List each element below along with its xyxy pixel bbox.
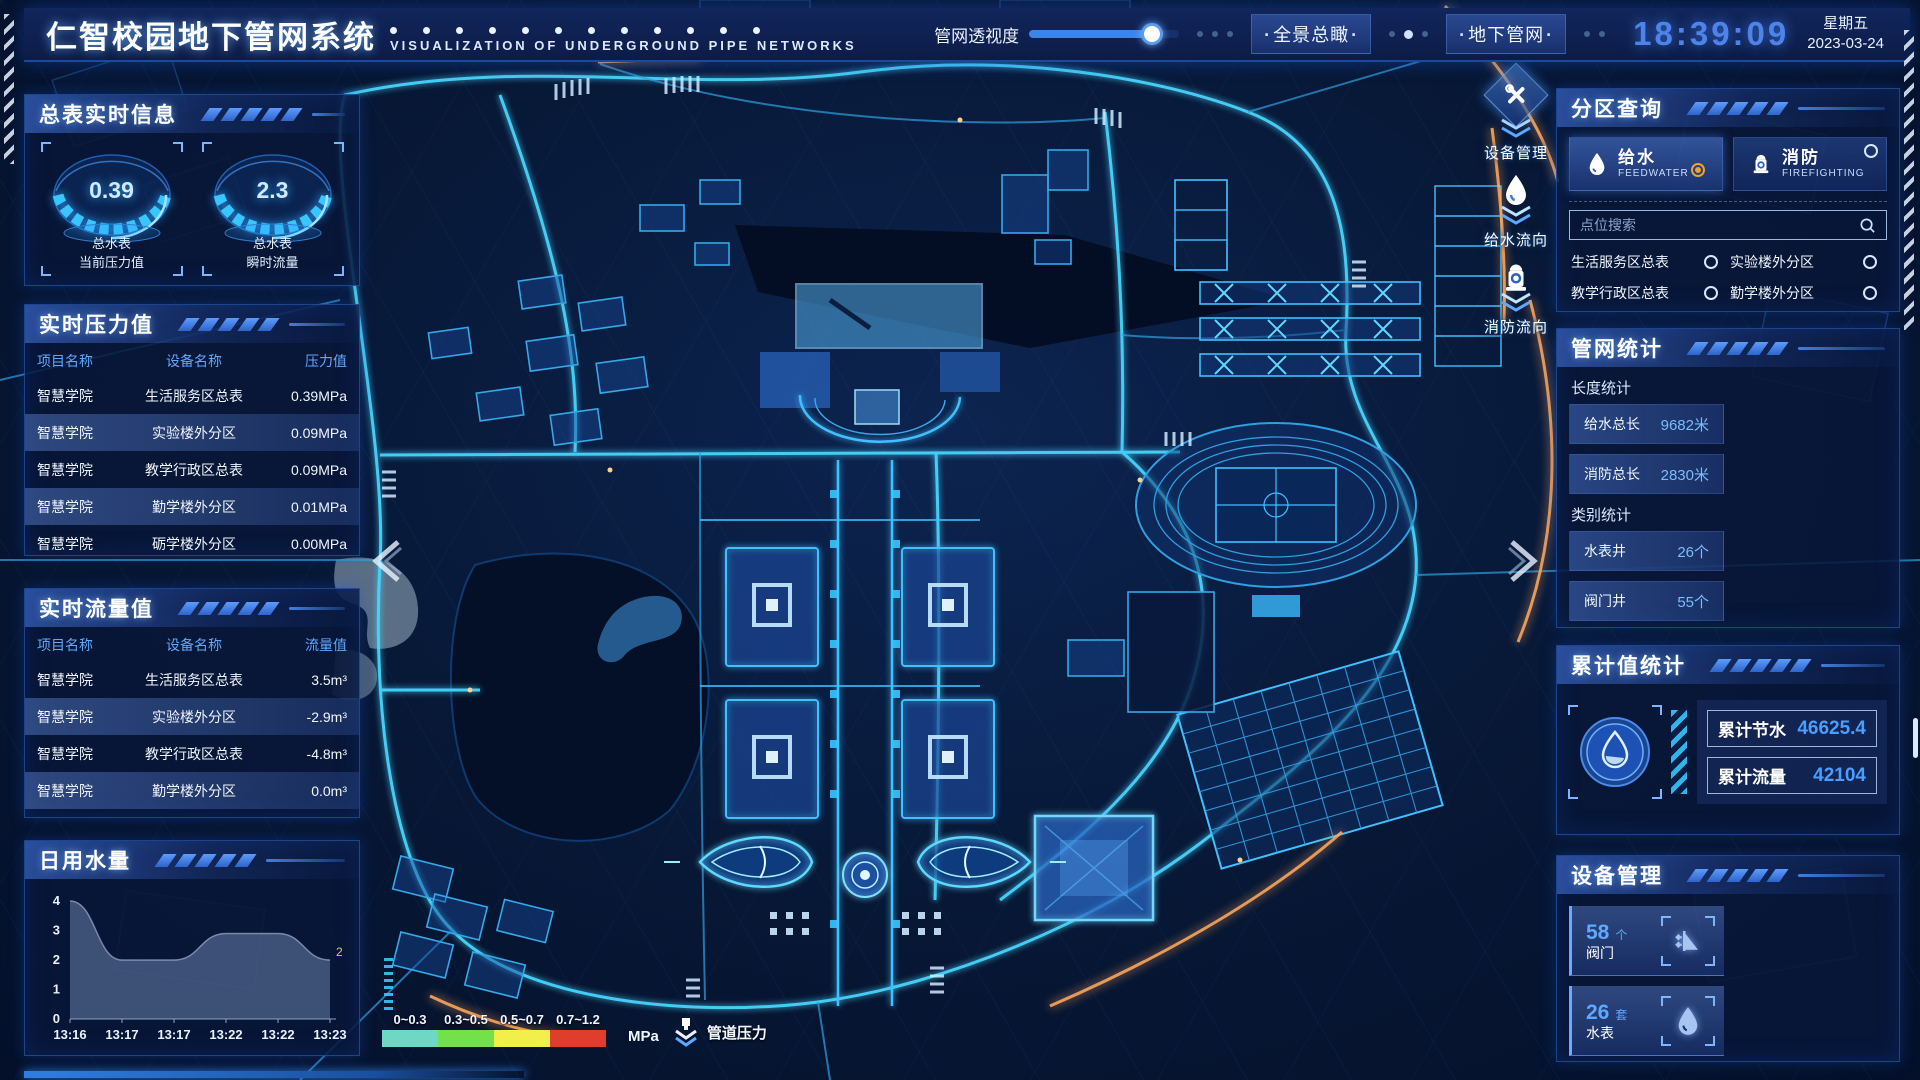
panel-flow: 实时流量值 项目名称设备名称流量值 智慧学院生活服务区总表3.5m³ 智慧学院实… [24,588,360,818]
solar-array [1177,651,1442,868]
zone-item[interactable]: 砺学楼外分区 [1569,308,1728,312]
stat-meter-wells: 水表井26个 [1569,531,1724,571]
transparency-slider-thumb[interactable] [1141,23,1163,45]
cumulative-saved-row: 累计节水46625.4 [1707,710,1877,747]
date: 2023-03-24 [1807,34,1884,54]
tab-radio[interactable] [1864,144,1878,158]
map-tick-decoration [384,958,393,1010]
pipe-pressure-icon [673,1017,699,1047]
panel-title: 设备管理 [1571,860,1663,890]
slash-decoration [1691,102,1784,115]
map-arrow-left[interactable] [368,538,402,584]
legend-range-label: 0.5~0.7 [494,1012,550,1027]
svg-text:13:17: 13:17 [105,1027,138,1042]
zone-item[interactable]: 实验楼外分区 [1728,246,1887,277]
gauge-label-line2: 瞬时流量 [203,254,343,273]
cumulative-water-icon-box [1569,706,1661,798]
underground-button[interactable]: 地下管网 [1446,14,1566,54]
sports-courts [1175,180,1501,376]
panel-zone-query: 分区查询 给水 FEEDWATER [1556,88,1900,312]
legend-range-label: 0.3~0.5 [438,1012,494,1027]
panel-title: 日用水量 [39,845,131,875]
table-row[interactable]: 智慧学院砺学楼外分区0.00MPa [25,525,359,556]
campus-ponds [332,554,709,841]
slash-decoration [1714,659,1807,672]
edge-decoration-right [1904,30,1914,330]
valve-icon [1673,926,1703,956]
tool-label: 给水流向 [1484,229,1548,250]
cumulative-flow-row: 累计流量42104 [1707,757,1877,794]
dot-separator [1389,30,1428,39]
transparency-slider[interactable] [1029,30,1179,38]
table-row[interactable]: 智慧学院生活服务区总表3.5m³ [25,661,359,698]
panel-pipe-stats: 管网统计 长度统计 给水总长9682米 消防总长2830米 类别统计 水表井26… [1556,328,1900,628]
panel-cumulative: 累计值统计 累计节水46625.4 累计流量42104 [1556,645,1900,835]
title-dots-decoration [390,27,857,34]
zone-item[interactable]: 勤学楼外分区 [1728,277,1887,308]
app-subtitle: VISUALIZATION OF UNDERGROUND PIPE NETWOR… [390,38,857,53]
slash-decoration [1691,869,1784,882]
gauge-value: 2.3 [203,177,343,204]
tab-label: 消防 [1782,148,1865,168]
daily-usage-chart: 4321013:1613:1713:1713:2213:2213:232 [34,887,350,1049]
dot-separator [1197,31,1233,37]
stat-fire-length: 消防总长2830米 [1569,454,1724,494]
tab-sublabel: FIREFIGHTING [1782,168,1865,180]
device-card-water-meters[interactable]: 26套 水表 [1569,986,1724,1056]
slash-decoration [205,108,298,121]
stat-feedwater-length: 给水总长9682米 [1569,404,1724,444]
search-box [1569,210,1887,240]
zone-radio[interactable] [1704,255,1718,269]
stadium [1136,423,1416,617]
legend-range-label: 0.7~1.2 [550,1012,606,1027]
stat-valve-wells: 阀门井55个 [1569,581,1724,621]
table-row[interactable]: 智慧学院教学行政区总表0.09MPa [25,451,359,488]
legend-swatch [494,1030,550,1047]
table-header: 项目名称设备名称压力值 [25,343,359,377]
tab-feedwater[interactable]: 给水 FEEDWATER [1569,137,1723,191]
central-avenue [830,460,900,1006]
search-input[interactable] [1580,217,1859,233]
pipe-pressure-label: 管道压力 [707,1022,767,1043]
dormitory-buildings [700,520,994,818]
water-drop-icon [1674,1006,1702,1036]
svg-text:4: 4 [53,893,61,908]
legend-range-label: 0~0.3 [382,1012,438,1027]
svg-text:13:22: 13:22 [261,1027,294,1042]
gauge-label-line1: 总水表 [203,235,343,254]
tool-fire-flow[interactable]: 消防流向 [1484,260,1548,343]
tab-radio-selected[interactable] [1691,163,1705,177]
bottom-accent-bar [24,1071,524,1078]
table-header: 项目名称设备名称流量值 [25,627,359,661]
zone-item[interactable]: 教学行政区总表 [1569,277,1728,308]
tool-feedwater-flow[interactable]: 给水流向 [1484,173,1548,256]
gauge-label-line2: 当前压力值 [42,254,182,273]
panel-title: 总表实时信息 [39,99,177,129]
tool-device-management[interactable]: 设备管理 [1484,64,1548,169]
gymnasium [1035,816,1153,920]
zone-list: 生活服务区总表 实验楼外分区 教学行政区总表 勤学楼外分区 砺学楼外分区 宿舍区… [1557,246,1899,312]
tab-label: 给水 [1618,148,1689,168]
svg-text:1: 1 [53,982,60,997]
water-drop-icon [1501,173,1531,207]
map-arrow-right[interactable] [1508,538,1542,584]
panel-device-management: 设备管理 58个 阀门 26套 [1556,855,1900,1062]
tab-sublabel: FEEDWATER [1618,168,1689,180]
main-hall [760,284,1000,442]
zone-item[interactable]: 生活服务区总表 [1569,246,1728,277]
panel-master-meter: 总表实时信息 0.39 总水表 当前压力值 [24,94,360,286]
legend-scale: 0~0.3 0.3~0.5 0.5~0.7 0.7~1.2 [382,1012,606,1047]
tool-label: 消防流向 [1484,316,1548,337]
svg-text:13:22: 13:22 [209,1027,242,1042]
flow-gauge: 2.3 总水表 瞬时流量 [203,143,343,275]
tab-firefighting[interactable]: 消防 FIREFIGHTING [1733,137,1887,191]
chevron-down-icon [1498,292,1534,314]
map-tool-column: 设备管理 给水流向 消防流向 [1474,64,1558,343]
table-row[interactable]: 智慧学院生活服务区总表0.39MPa [25,377,359,414]
wrench-icon [1503,82,1529,108]
dot-separator [1584,31,1605,37]
slash-decoration [159,854,252,867]
table-row[interactable]: 智慧学院实验楼外分区-2.9m³ [25,698,359,735]
striped-divider [1671,710,1687,794]
svg-text:2: 2 [336,945,343,959]
table-row[interactable]: 智慧学院勤学楼外分区0.0m³ [25,772,359,809]
zone-radio[interactable] [1863,255,1877,269]
svg-text:13:16: 13:16 [53,1027,86,1042]
panel-title: 分区查询 [1571,93,1663,123]
panel-pressure: 实时压力值 项目名称设备名称压力值 智慧学院生活服务区总表0.39MPa 智慧学… [24,304,360,556]
plaza-gardens [664,837,1066,935]
panel-title: 管网统计 [1571,333,1663,363]
dashboard: 仁智校园地下管网系统 VISUALIZATION OF UNDERGROUND … [0,0,1920,1080]
gauge-label-line1: 总水表 [42,235,182,254]
clock: 18:39:09 [1633,15,1789,53]
panel-title: 累计值统计 [1571,650,1686,680]
panel-daily-usage: 日用水量 4321013:1613:1713:1713:2213:2213:23… [24,840,360,1056]
overview-button[interactable]: 全景总瞰 [1251,14,1371,54]
slash-decoration [182,602,275,615]
panel-title: 实时压力值 [39,309,154,339]
pressure-gauge: 0.39 总水表 当前压力值 [42,143,182,275]
edge-decoration-left [4,14,14,164]
svg-text:13:17: 13:17 [157,1027,190,1042]
panel-title: 实时流量值 [39,593,154,623]
zone-item[interactable]: 宿舍区泵房 [1728,308,1887,312]
svg-text:13:23: 13:23 [313,1027,346,1042]
section-label-length: 长度统计 [1557,367,1899,404]
hydrant-icon [1750,151,1772,177]
dashed-divider [1569,201,1887,202]
chevron-down-icon [1498,205,1534,227]
header-bar: 仁智校园地下管网系统 VISUALIZATION OF UNDERGROUND … [24,8,1910,62]
search-icon[interactable] [1859,217,1876,234]
svg-text:3: 3 [53,923,60,938]
table-row[interactable]: 智慧学院实验楼外分区0.09MPa [25,414,359,451]
table-row[interactable]: 智慧学院勤学楼外分区0.01MPa [25,488,359,525]
app-title: 仁智校园地下管网系统 [46,12,376,57]
legend-swatch [550,1030,606,1047]
scrollbar-thumb[interactable] [1913,718,1918,758]
svg-text:0: 0 [53,1011,60,1026]
transparency-label: 管网透视度 [934,22,1019,47]
svg-text:2: 2 [53,952,60,967]
legend-swatch [382,1030,438,1047]
zone-radio[interactable] [1863,286,1877,300]
slash-decoration [182,318,275,331]
weekday: 星期五 [1807,14,1884,34]
device-card-valves[interactable]: 58个 阀门 [1569,906,1724,976]
gauge-value: 0.39 [42,177,182,204]
water-drop-icon [1577,714,1653,790]
zone-radio[interactable] [1704,286,1718,300]
tool-label: 设备管理 [1484,142,1548,163]
section-label-category: 类别统计 [1557,494,1899,531]
slash-decoration [1691,342,1784,355]
legend-unit: MPa [628,1028,659,1047]
table-row[interactable]: 智慧学院砺学楼外分区2.3m³ [25,809,359,818]
water-drop-icon [1586,151,1608,177]
pressure-legend: 0~0.3 0.3~0.5 0.5~0.7 0.7~1.2 MPa 管道压力 [382,1012,767,1047]
transparency-slider-fill [1029,30,1152,38]
legend-swatch [438,1030,494,1047]
hydrant-icon [1501,260,1531,294]
table-row[interactable]: 智慧学院教学行政区总表-4.8m³ [25,735,359,772]
